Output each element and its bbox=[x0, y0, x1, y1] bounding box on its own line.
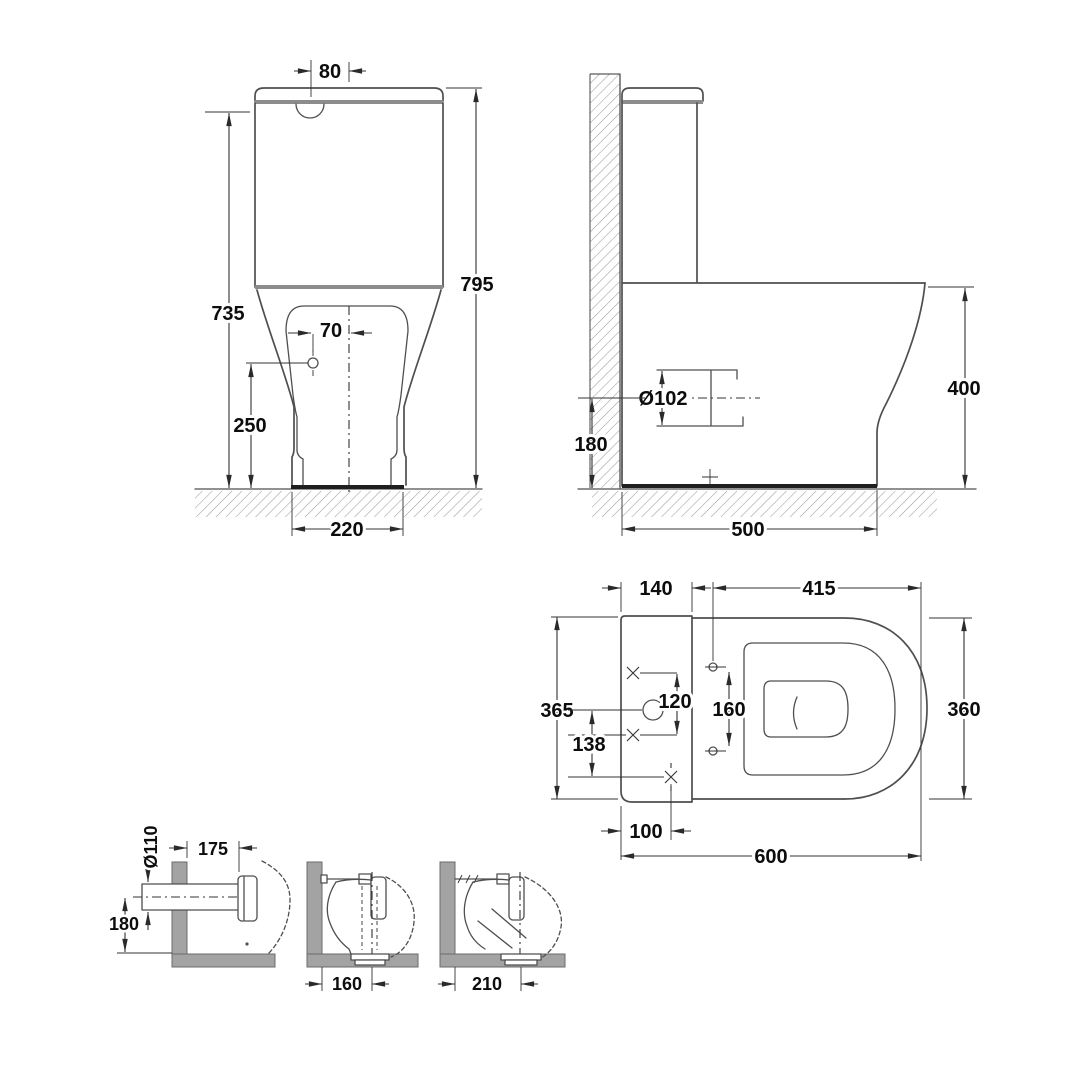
side-outlet-spigot: Ø102 bbox=[639, 370, 760, 426]
side-wall bbox=[590, 74, 620, 488]
inlet-hole bbox=[308, 358, 318, 368]
front-view: 80 795 735 70 250 220 bbox=[195, 60, 494, 541]
dim-label-365: 365 bbox=[540, 700, 573, 722]
dim-label-415: 415 bbox=[802, 578, 835, 600]
s-trap-210-wall bbox=[440, 862, 455, 954]
front-bowl-outline bbox=[257, 290, 441, 492]
dim-label-400: 400 bbox=[947, 378, 980, 400]
fixing-hole-mark-bottom bbox=[627, 729, 639, 741]
dim-s-trap-210: 210 bbox=[438, 967, 538, 994]
front-cistern-outline bbox=[255, 88, 443, 287]
toilet-dimension-diagram: 80 795 735 70 250 220 bbox=[0, 0, 1080, 1080]
dim-label-160-plan: 160 bbox=[712, 699, 745, 721]
s-trap-210-flush-pipe bbox=[509, 877, 524, 920]
installation-p-trap: Ø110 175 180 bbox=[109, 825, 290, 967]
installation-s-trap-160: 160 bbox=[305, 862, 418, 994]
dim-label-120: 120 bbox=[658, 691, 691, 713]
dim-label-o102: Ø102 bbox=[639, 388, 688, 410]
dim-label-210-install: 210 bbox=[472, 974, 502, 994]
side-floor bbox=[578, 489, 976, 517]
side-view: Ø102 180 400 500 bbox=[574, 74, 980, 541]
dim-label-80: 80 bbox=[319, 61, 341, 83]
dim-front-button-width: 80 bbox=[294, 60, 366, 97]
s-trap-160-flush-pipe bbox=[371, 877, 386, 919]
dim-label-175: 175 bbox=[198, 839, 228, 859]
dim-label-100: 100 bbox=[629, 821, 662, 843]
dim-label-500: 500 bbox=[731, 519, 764, 541]
front-floor bbox=[195, 487, 482, 517]
dim-label-600: 600 bbox=[754, 846, 787, 868]
p-trap-pan-back-hidden bbox=[262, 861, 290, 954]
s-trap-160-wall bbox=[307, 862, 322, 954]
dim-label-160-install: 160 bbox=[332, 974, 362, 994]
dim-label-138: 138 bbox=[572, 734, 605, 756]
dim-label-250: 250 bbox=[233, 415, 266, 437]
plan-bowl-outline bbox=[665, 618, 927, 799]
dim-label-360: 360 bbox=[947, 699, 980, 721]
dim-label-o110: Ø110 bbox=[141, 825, 161, 868]
dim-plan-overall-width: 365 bbox=[540, 617, 618, 799]
p-trap-floor bbox=[172, 954, 275, 967]
side-pan-outline bbox=[622, 283, 925, 486]
dim-label-180-install: 180 bbox=[109, 914, 139, 934]
dim-label-795: 795 bbox=[460, 274, 493, 296]
dim-side-pan-height: 400 bbox=[928, 287, 981, 488]
dim-label-180-side: 180 bbox=[574, 434, 607, 456]
dim-front-inlet-offset: 70 bbox=[288, 320, 372, 352]
dim-label-140: 140 bbox=[639, 578, 672, 600]
dim-plan-overall-depth: 600 bbox=[621, 846, 921, 868]
dim-plan-pan-width: 360 bbox=[929, 618, 981, 799]
technical-drawing-page: 80 795 735 70 250 220 bbox=[0, 0, 1080, 1080]
dim-s-trap-160: 160 bbox=[305, 967, 389, 994]
dim-plan-hinge-centres: 160 bbox=[705, 667, 746, 751]
plan-view: 140 415 365 360 120 160 bbox=[540, 578, 980, 868]
dim-label-220: 220 bbox=[330, 519, 363, 541]
dim-label-735: 735 bbox=[211, 303, 244, 325]
dim-p-trap-pipe-diameter: Ø110 bbox=[141, 825, 161, 930]
dim-plan-outlet-offset: 100 bbox=[601, 784, 691, 860]
installation-s-trap-210: 210 bbox=[438, 862, 565, 994]
dim-plan-fixing-centres: 120 bbox=[640, 673, 692, 735]
dim-front-overall-height: 795 bbox=[446, 88, 494, 488]
dim-plan-cistern-depth: 140 bbox=[602, 578, 711, 612]
p-trap-flange bbox=[238, 876, 257, 921]
fixing-dot bbox=[245, 942, 248, 945]
fixing-hole-mark-top bbox=[627, 667, 639, 679]
dim-label-70: 70 bbox=[320, 320, 342, 342]
